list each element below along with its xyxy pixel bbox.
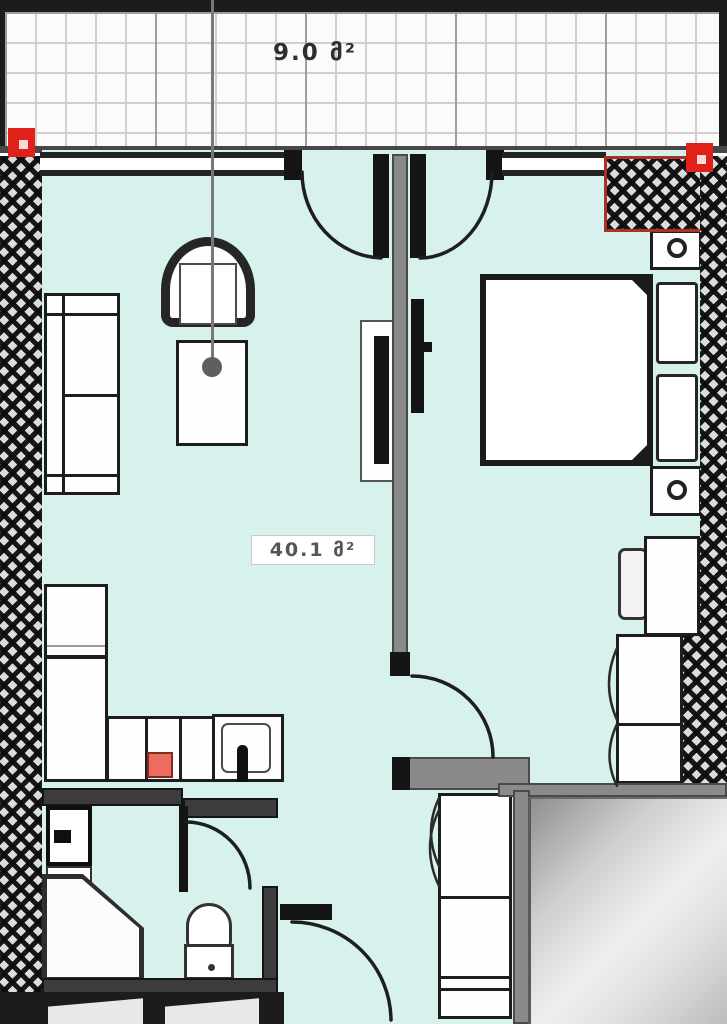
wardrobe-door-curve-1 xyxy=(609,648,617,720)
balcony-area-label: 9.0 მ² xyxy=(240,40,390,66)
bed-fold-mark-bottom xyxy=(632,442,650,460)
bed-fold-mark-top xyxy=(632,280,650,298)
door-swing-arc-living-balcony xyxy=(302,172,381,258)
door-swing-arc-bedroom-balcony xyxy=(420,172,492,258)
red-marker-inner-left xyxy=(19,140,28,149)
apartment-area-label: 40.1 მ² xyxy=(251,535,375,565)
door-swing-arc-bathroom xyxy=(186,822,250,888)
red-corner-marker-right xyxy=(686,143,713,172)
door-swing-arc-bedroom xyxy=(412,676,493,757)
door-swing-overlay xyxy=(0,0,727,1024)
red-corner-marker-left xyxy=(8,128,35,157)
floor-plan-canvas: 9.0 მ² 40.1 მ² xyxy=(0,0,727,1024)
dimension-line xyxy=(211,0,214,368)
door-swing-arc-entrance xyxy=(292,922,391,1020)
wardrobe-door-curve-2 xyxy=(610,724,618,786)
dimension-line-dot xyxy=(202,357,222,377)
red-marker-inner-right xyxy=(697,155,706,164)
